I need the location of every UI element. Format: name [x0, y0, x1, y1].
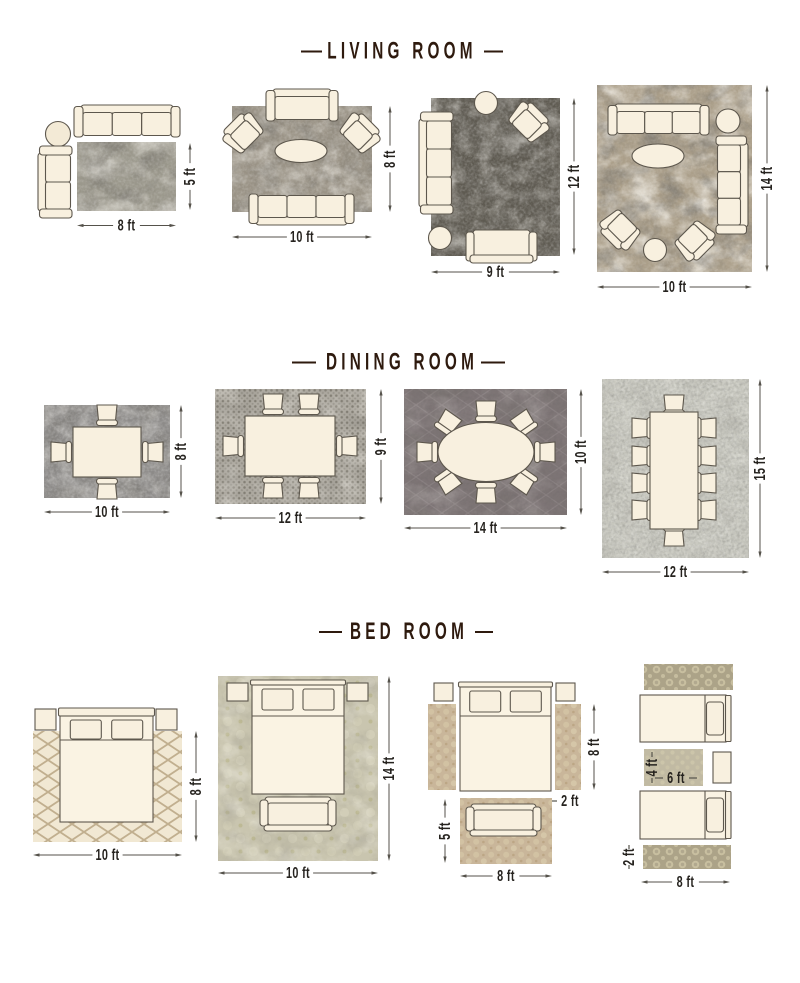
- svg-text:2 ft: 2 ft: [620, 848, 637, 866]
- svg-text:10 ft: 10 ft: [572, 440, 589, 464]
- svg-text:6 ft: 6 ft: [667, 769, 685, 786]
- svg-text:9 ft: 9 ft: [487, 263, 505, 280]
- svg-text:2 ft: 2 ft: [561, 792, 579, 809]
- svg-text:8 ft: 8 ft: [585, 738, 602, 756]
- svg-text:8 ft: 8 ft: [677, 873, 695, 890]
- svg-text:8 ft: 8 ft: [187, 778, 204, 796]
- svg-text:10 ft: 10 ft: [95, 503, 119, 520]
- svg-text:15 ft: 15 ft: [751, 456, 768, 480]
- svg-text:12 ft: 12 ft: [565, 164, 582, 188]
- svg-text:12 ft: 12 ft: [278, 509, 302, 526]
- svg-text:10 ft: 10 ft: [95, 846, 119, 863]
- svg-text:DINING ROOM: DINING ROOM: [326, 349, 478, 375]
- svg-text:9 ft: 9 ft: [372, 438, 389, 456]
- svg-text:8 ft: 8 ft: [381, 150, 398, 168]
- svg-text:12 ft: 12 ft: [663, 563, 687, 580]
- svg-text:8 ft: 8 ft: [497, 867, 515, 884]
- svg-text:10 ft: 10 ft: [290, 228, 314, 245]
- svg-text:14 ft: 14 ft: [380, 756, 397, 780]
- svg-text:8 ft: 8 ft: [172, 443, 189, 461]
- svg-text:8 ft: 8 ft: [118, 217, 136, 234]
- svg-text:5 ft: 5 ft: [181, 168, 198, 186]
- svg-text:14 ft: 14 ft: [473, 519, 497, 536]
- svg-text:LIVING ROOM: LIVING ROOM: [327, 38, 477, 64]
- svg-text:5 ft: 5 ft: [436, 822, 453, 840]
- svg-text:10 ft: 10 ft: [286, 864, 310, 881]
- svg-text:10 ft: 10 ft: [662, 278, 686, 295]
- svg-text:BED ROOM: BED ROOM: [350, 619, 468, 645]
- svg-text:14 ft: 14 ft: [758, 166, 775, 190]
- svg-text:4 ft: 4 ft: [643, 759, 660, 777]
